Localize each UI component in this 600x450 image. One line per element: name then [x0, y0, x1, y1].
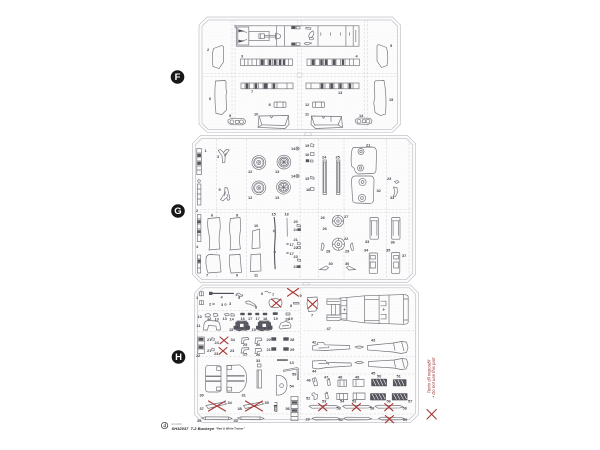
- svg-text:47: 47: [327, 326, 331, 331]
- svg-text:57: 57: [408, 399, 412, 404]
- svg-text:7: 7: [311, 313, 313, 318]
- svg-text:F: F: [175, 72, 181, 83]
- svg-text:7: 7: [251, 89, 253, 94]
- svg-text:17: 17: [256, 316, 260, 321]
- svg-text:10: 10: [198, 314, 202, 319]
- svg-text:37: 37: [200, 406, 204, 411]
- svg-text:27: 27: [344, 214, 348, 219]
- svg-text:G: G: [174, 206, 181, 217]
- svg-text:7: 7: [272, 292, 274, 297]
- svg-text:47: 47: [324, 375, 328, 380]
- svg-text:30: 30: [329, 261, 333, 266]
- svg-text:10: 10: [254, 112, 258, 117]
- svg-text:50: 50: [377, 374, 381, 379]
- svg-text:17: 17: [248, 316, 252, 321]
- svg-text:20: 20: [294, 219, 298, 224]
- svg-text:SH32037 T-2 Buckeye: SH32037 T-2 Buckeye: [172, 426, 215, 431]
- svg-text:20: 20: [267, 337, 271, 342]
- svg-text:• Do not use this part: • Do not use this part: [431, 357, 436, 398]
- svg-text:40: 40: [234, 418, 238, 423]
- svg-text:H: H: [175, 352, 182, 363]
- svg-text:37: 37: [402, 253, 406, 258]
- svg-text:40: 40: [339, 417, 343, 422]
- svg-text:30: 30: [345, 261, 349, 266]
- svg-text:10: 10: [254, 223, 258, 228]
- svg-text:7: 7: [206, 273, 208, 278]
- svg-text:30: 30: [200, 393, 204, 398]
- svg-text:4: 4: [163, 424, 166, 430]
- svg-text:“Red & White Trainer”: “Red & White Trainer”: [216, 427, 246, 431]
